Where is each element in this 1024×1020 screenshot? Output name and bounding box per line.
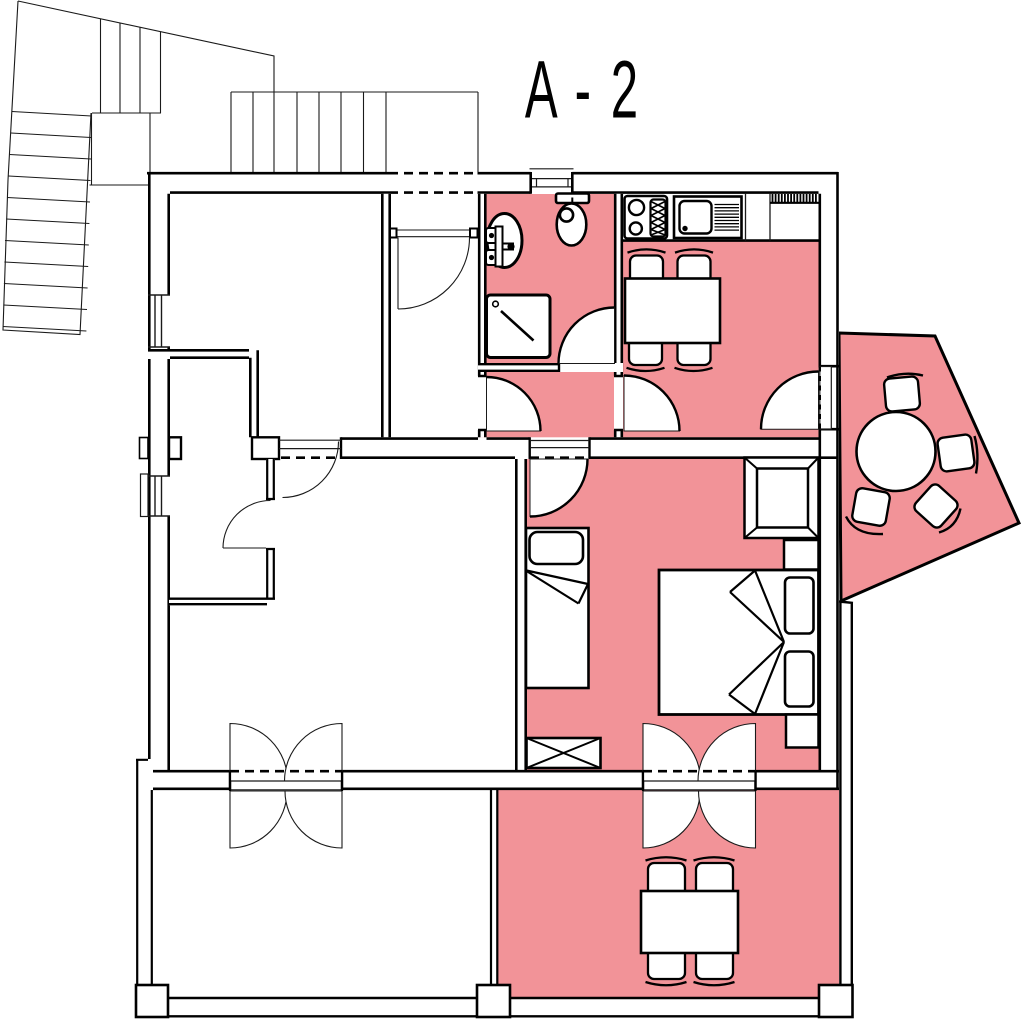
svg-text:A - 2: A - 2: [525, 45, 641, 136]
